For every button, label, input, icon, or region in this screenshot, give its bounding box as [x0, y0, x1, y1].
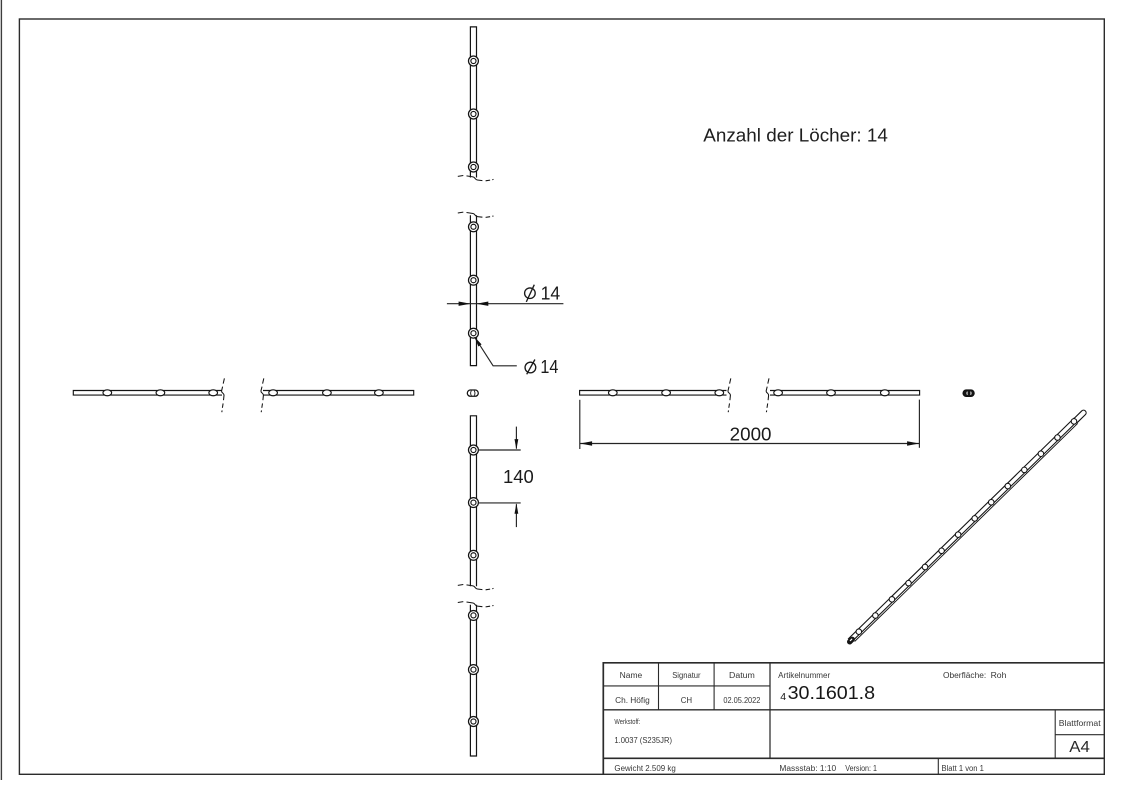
svg-text:Roh: Roh — [991, 671, 1007, 680]
svg-text:Gewicht 2.509 kg: Gewicht 2.509 kg — [614, 764, 675, 773]
svg-text:1.0037 (S235JR): 1.0037 (S235JR) — [614, 736, 672, 745]
svg-text:Datum: Datum — [729, 671, 755, 680]
svg-text:Werkstoff:: Werkstoff: — [614, 717, 640, 726]
svg-text:2000: 2000 — [730, 424, 772, 445]
svg-text:Version: 1: Version: 1 — [845, 764, 877, 773]
svg-text:02.05.2022: 02.05.2022 — [723, 696, 760, 705]
svg-text:Anzahl der Löcher: 14: Anzahl der Löcher: 14 — [703, 125, 888, 146]
svg-text:4: 4 — [780, 691, 786, 703]
svg-text:140: 140 — [503, 466, 534, 487]
svg-text:Signatur: Signatur — [672, 671, 701, 680]
svg-text:Oberfläche:: Oberfläche: — [943, 671, 986, 680]
svg-text:Ch. Höfig: Ch. Höfig — [615, 696, 650, 705]
svg-text:CH: CH — [681, 696, 693, 705]
svg-text:Blattformat: Blattformat — [1059, 718, 1101, 728]
svg-text:Massstab: 1:10: Massstab: 1:10 — [779, 764, 836, 773]
svg-text:Name: Name — [620, 671, 643, 680]
svg-text:Blatt 1 von 1: Blatt 1 von 1 — [942, 764, 984, 773]
svg-text:14: 14 — [541, 282, 561, 303]
svg-text:Artikelnummer: Artikelnummer — [778, 671, 830, 680]
svg-text:14: 14 — [540, 356, 558, 377]
svg-text:A4: A4 — [1069, 739, 1090, 756]
svg-text:30.1601.8: 30.1601.8 — [788, 682, 876, 703]
